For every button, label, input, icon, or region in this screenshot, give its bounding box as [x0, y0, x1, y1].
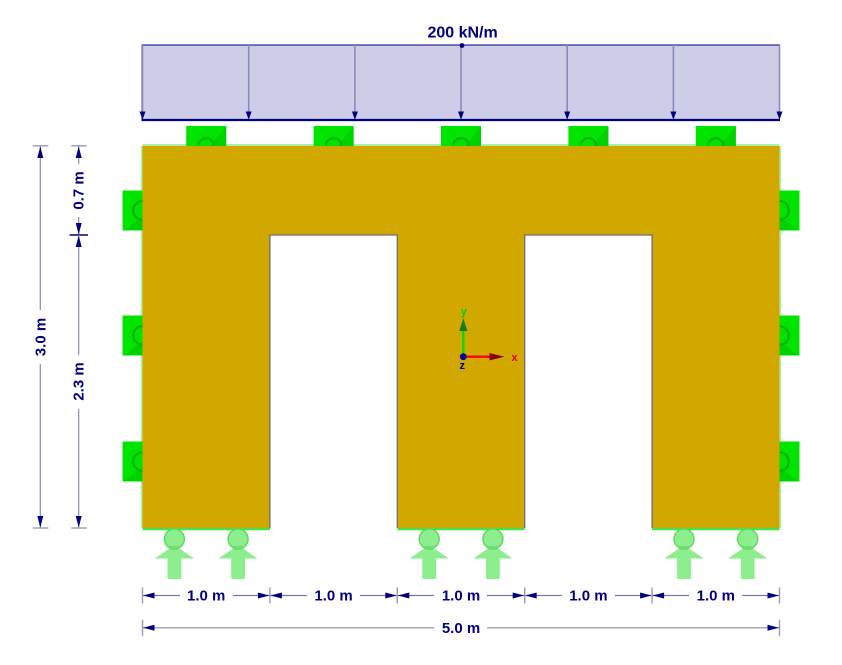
svg-text:0.7 m: 0.7 m	[71, 171, 88, 209]
svg-text:y: y	[461, 306, 468, 318]
svg-text:3.0 m: 3.0 m	[32, 318, 49, 356]
svg-text:1.0 m: 1.0 m	[314, 588, 352, 605]
svg-text:1.0 m: 1.0 m	[569, 588, 607, 605]
svg-text:2.3 m: 2.3 m	[71, 362, 88, 400]
svg-text:1.0 m: 1.0 m	[442, 588, 480, 605]
svg-text:z: z	[460, 360, 466, 372]
svg-text:1.0 m: 1.0 m	[697, 588, 735, 605]
svg-text:5.0 m: 5.0 m	[442, 620, 480, 637]
svg-text:x: x	[511, 352, 518, 364]
svg-text:200 kN/m: 200 kN/m	[427, 25, 497, 42]
svg-text:1.0 m: 1.0 m	[187, 588, 225, 605]
